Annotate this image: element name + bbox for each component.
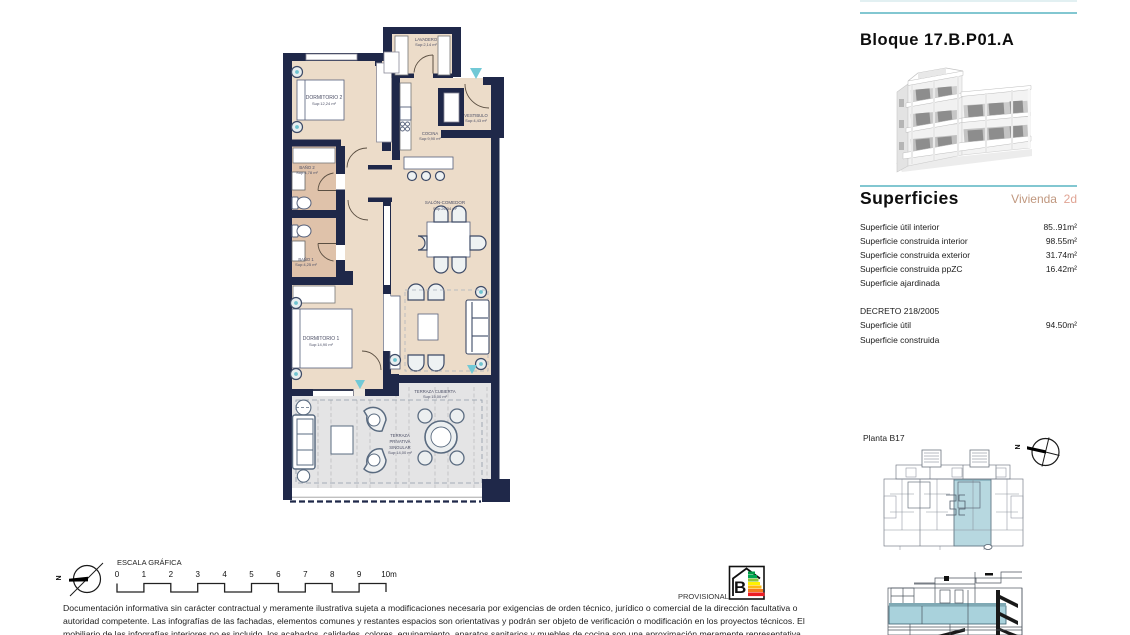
svg-text:10m: 10m (381, 570, 397, 579)
svg-text:4: 4 (222, 570, 227, 579)
svg-text:6: 6 (276, 570, 281, 579)
svg-text:Sup:2,14 m²: Sup:2,14 m² (415, 42, 437, 47)
svg-text:B: B (734, 578, 746, 597)
svg-text:N: N (56, 575, 63, 580)
svg-text:Sup:14,90 m²: Sup:14,90 m² (309, 342, 334, 347)
svg-text:3: 3 (195, 570, 200, 579)
svg-text:Sup:4,25 m²: Sup:4,25 m² (295, 262, 317, 267)
svg-text:Sup:4,78 m²: Sup:4,78 m² (296, 170, 318, 175)
svg-text:8: 8 (330, 570, 335, 579)
svg-text:Sup:9,90 m²: Sup:9,90 m² (419, 136, 441, 141)
svg-text:N: N (1015, 444, 1022, 449)
svg-text:SALÓN-COMEDOR: SALÓN-COMEDOR (425, 199, 466, 205)
svg-text:5: 5 (249, 570, 254, 579)
svg-text:TERRAZA: TERRAZA (390, 433, 410, 438)
svg-text:7: 7 (303, 570, 308, 579)
svg-text:Sup:15,00 m²: Sup:15,00 m² (423, 394, 448, 399)
svg-text:PRIVATIVA: PRIVATIVA (390, 439, 411, 444)
svg-text:2: 2 (169, 570, 174, 579)
svg-text:0: 0 (115, 570, 120, 579)
svg-text:Sup:26,34 m²: Sup:26,34 m² (433, 206, 458, 211)
svg-text:Sup:12,24 m²: Sup:12,24 m² (312, 101, 337, 106)
svg-text:Sup:14,00 m²: Sup:14,00 m² (388, 450, 413, 455)
svg-text:9: 9 (357, 570, 362, 579)
svg-text:Sup:4,43 m²: Sup:4,43 m² (465, 118, 487, 123)
svg-text:1: 1 (142, 570, 147, 579)
